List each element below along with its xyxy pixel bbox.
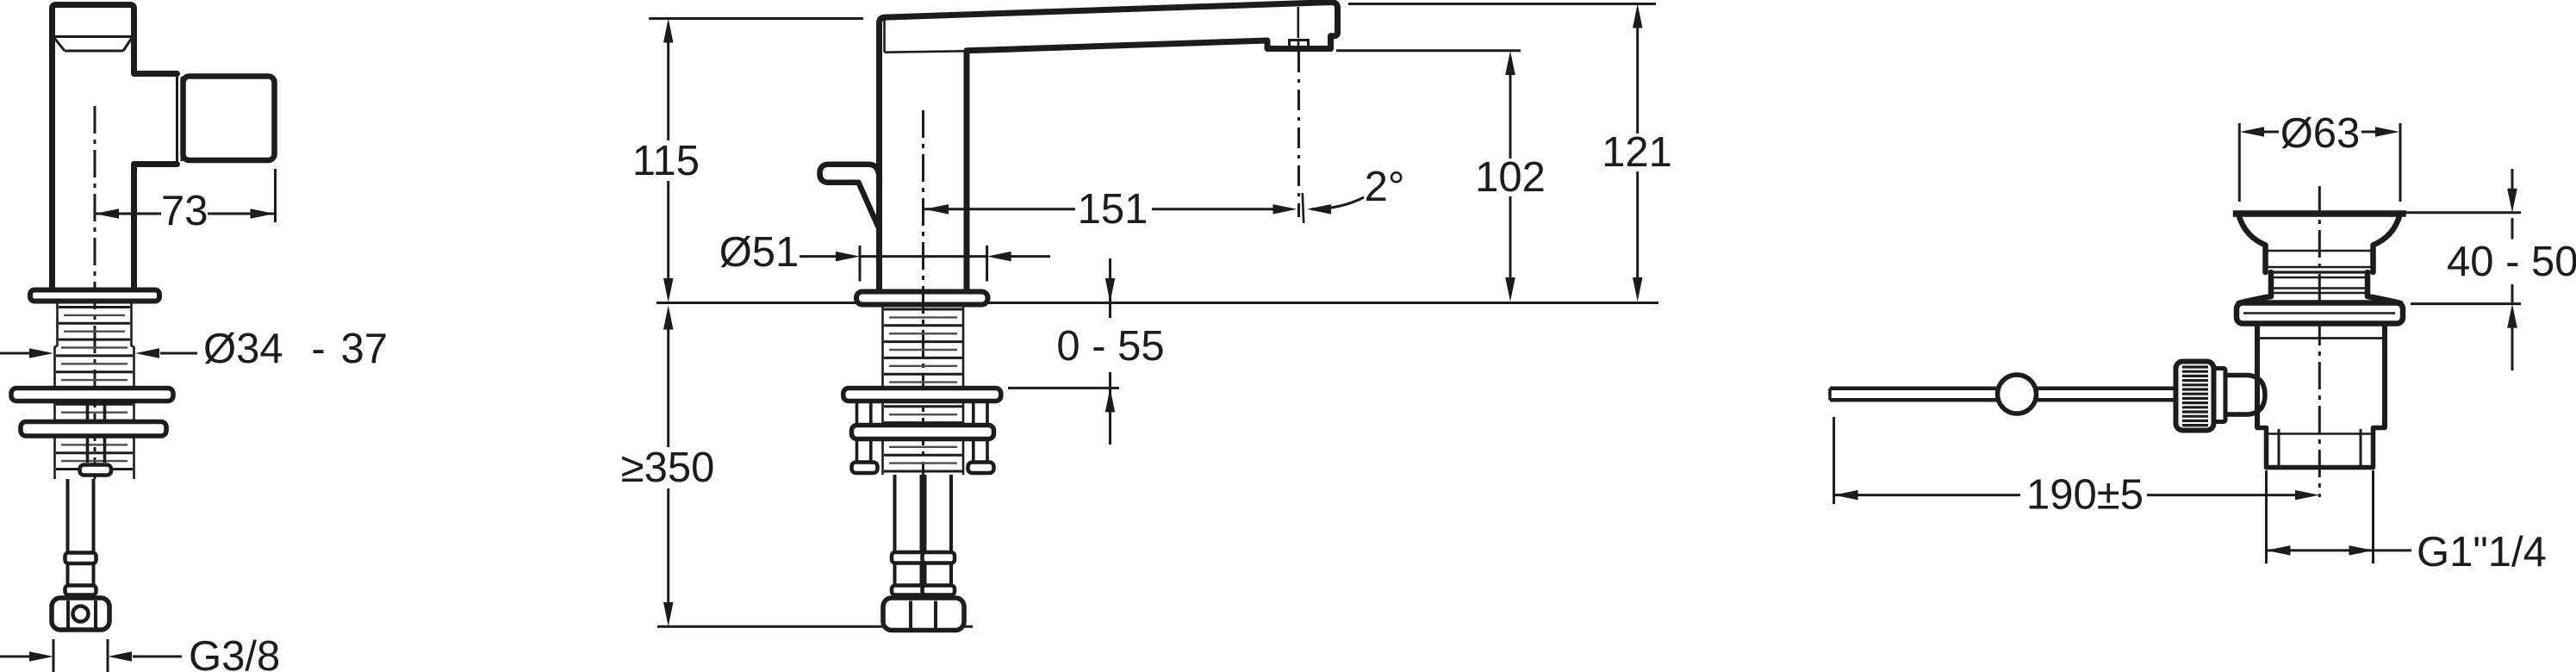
svg-text:G1"1/4: G1"1/4 — [2417, 529, 2547, 576]
svg-text:0 - 55: 0 - 55 — [1056, 323, 1164, 370]
svg-text:121: 121 — [1602, 129, 1672, 176]
svg-text:151: 151 — [1078, 186, 1148, 233]
svg-text:37: 37 — [341, 326, 389, 372]
svg-text:≥350: ≥350 — [621, 445, 715, 491]
svg-text:115: 115 — [632, 138, 700, 184]
svg-text:Ø63: Ø63 — [2280, 110, 2361, 157]
svg-text:2°: 2° — [1365, 164, 1405, 210]
svg-text:190±5: 190±5 — [2026, 472, 2144, 519]
svg-text:Ø34: Ø34 — [203, 326, 283, 372]
svg-text:40 - 50: 40 - 50 — [2447, 239, 2576, 285]
svg-text:-: - — [311, 326, 325, 372]
svg-text:102: 102 — [1475, 154, 1546, 201]
svg-text:73: 73 — [161, 188, 208, 234]
svg-text:Ø51: Ø51 — [719, 229, 800, 276]
svg-text:G3/8: G3/8 — [189, 633, 280, 672]
